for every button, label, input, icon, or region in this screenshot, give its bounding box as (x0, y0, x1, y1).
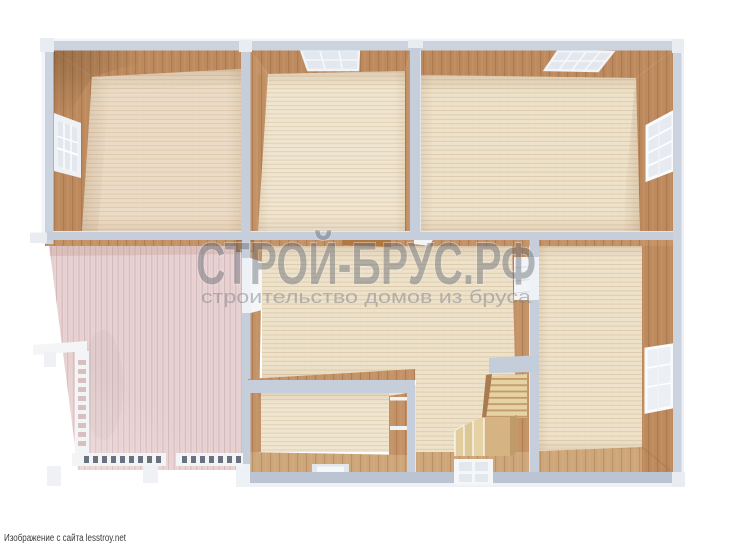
svg-text:Изображение с сайта lesstroy.n: Изображение с сайта lesstroy.net (4, 532, 126, 544)
svg-text:строительство домов из бруса: строительство домов из бруса (201, 287, 532, 307)
